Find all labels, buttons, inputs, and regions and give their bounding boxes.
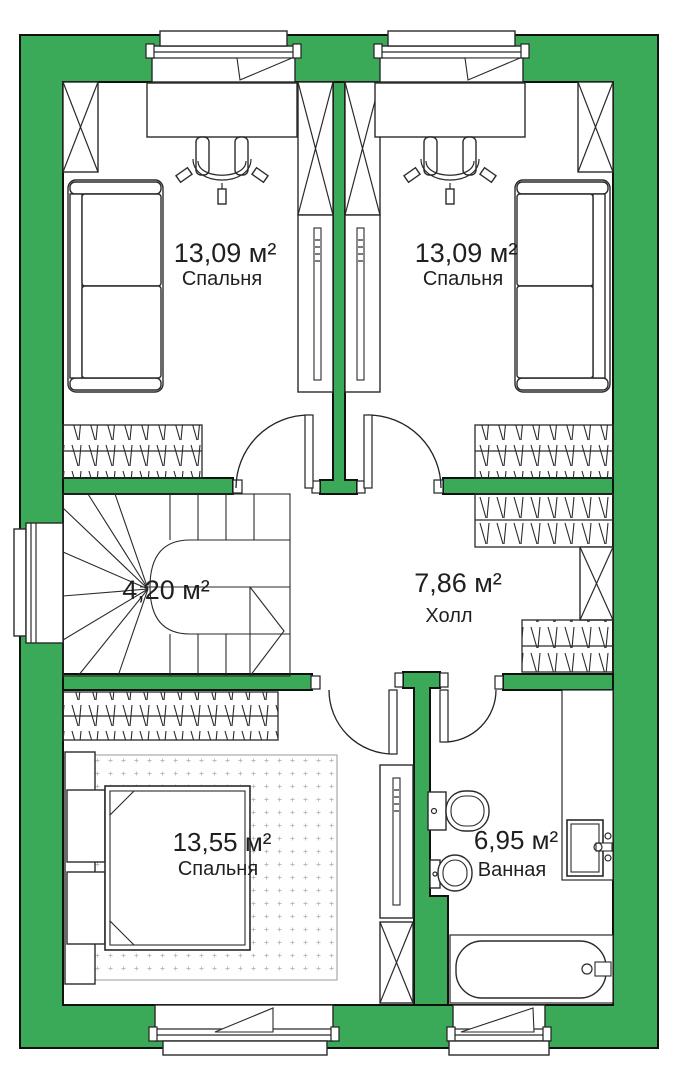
room-area: 7,86 м² <box>414 568 502 598</box>
interior-wall-mid-left <box>63 478 233 494</box>
bidet-icon <box>430 855 472 891</box>
room-label-bedroom-top-right: 13,09 м² Спальня <box>415 238 518 290</box>
closet-hangers <box>475 425 613 478</box>
headboard <box>65 752 95 984</box>
sofa-icon <box>515 180 610 392</box>
room-label-bedroom-top-left: 13,09 м² Спальня <box>174 238 277 290</box>
sink-vanity-icon <box>562 690 613 880</box>
door-bedroom-top-left <box>236 415 313 488</box>
interior-wall-mid-right <box>443 478 613 494</box>
door-jamb <box>495 676 503 689</box>
door-jamb <box>440 673 448 687</box>
door-bedroom-bottom <box>329 690 397 754</box>
sofa-icon <box>68 180 163 392</box>
wardrobe-icon <box>63 82 98 172</box>
wardrobe-icon <box>578 82 613 172</box>
room-area: 13,55 м² <box>173 827 272 857</box>
door-jamb <box>434 480 443 493</box>
closet-hangers <box>475 494 613 547</box>
interior-wall-lower-right <box>503 674 613 690</box>
nightstand <box>67 790 105 862</box>
window-left <box>14 523 63 643</box>
stairs-direction-arrow <box>250 587 284 676</box>
closet-hangers <box>63 692 278 740</box>
window-bottom-left <box>149 1005 339 1055</box>
wardrobe-icon <box>580 547 613 620</box>
door-bathroom <box>440 690 496 742</box>
desk-and-chair <box>375 83 525 204</box>
room-name: Ванная <box>478 859 547 881</box>
wardrobe-icon <box>298 82 333 215</box>
sliding-wardrobe-icon <box>345 215 380 392</box>
room-name: Спальня <box>182 268 262 290</box>
window-bottom-right <box>447 1005 551 1055</box>
bathtub-icon <box>450 935 613 1003</box>
room-name: Спальня <box>178 858 258 880</box>
door-jamb <box>233 480 242 493</box>
room-label-stairs: 4,20 м² <box>122 575 210 605</box>
floor-plan: 13,09 м² Спальня 13,09 м² Спальня 4,20 м… <box>0 0 674 1080</box>
room-label-hall: 7,86 м² Холл <box>414 568 502 627</box>
sliding-wardrobe-icon <box>298 215 333 392</box>
room-label-bathroom: 6,95 м² Ванная <box>474 825 559 881</box>
washing-machine-icon <box>380 922 413 1003</box>
room-area: 4,20 м² <box>122 575 210 605</box>
room-area: 13,09 м² <box>415 238 518 268</box>
closet-hangers <box>522 620 613 672</box>
room-area: 13,09 м² <box>174 238 277 268</box>
room-area: 6,95 м² <box>474 825 559 855</box>
closet-hangers <box>63 425 202 478</box>
door-bedroom-top-right <box>364 415 441 488</box>
room-name: Холл <box>425 605 472 627</box>
room-name: Спальня <box>423 268 503 290</box>
mirror-cabinet-icon <box>380 765 413 918</box>
desk-and-chair <box>147 83 297 204</box>
floor-plan-drawing: 13,09 м² Спальня 13,09 м² Спальня 4,20 м… <box>0 0 674 1080</box>
nightstand <box>67 872 105 944</box>
window-top-right <box>374 31 529 82</box>
window-top-left <box>146 31 301 82</box>
door-jamb <box>395 673 403 687</box>
room-label-bedroom-bottom: 13,55 м² Спальня <box>173 827 272 880</box>
door-jamb <box>311 676 320 689</box>
